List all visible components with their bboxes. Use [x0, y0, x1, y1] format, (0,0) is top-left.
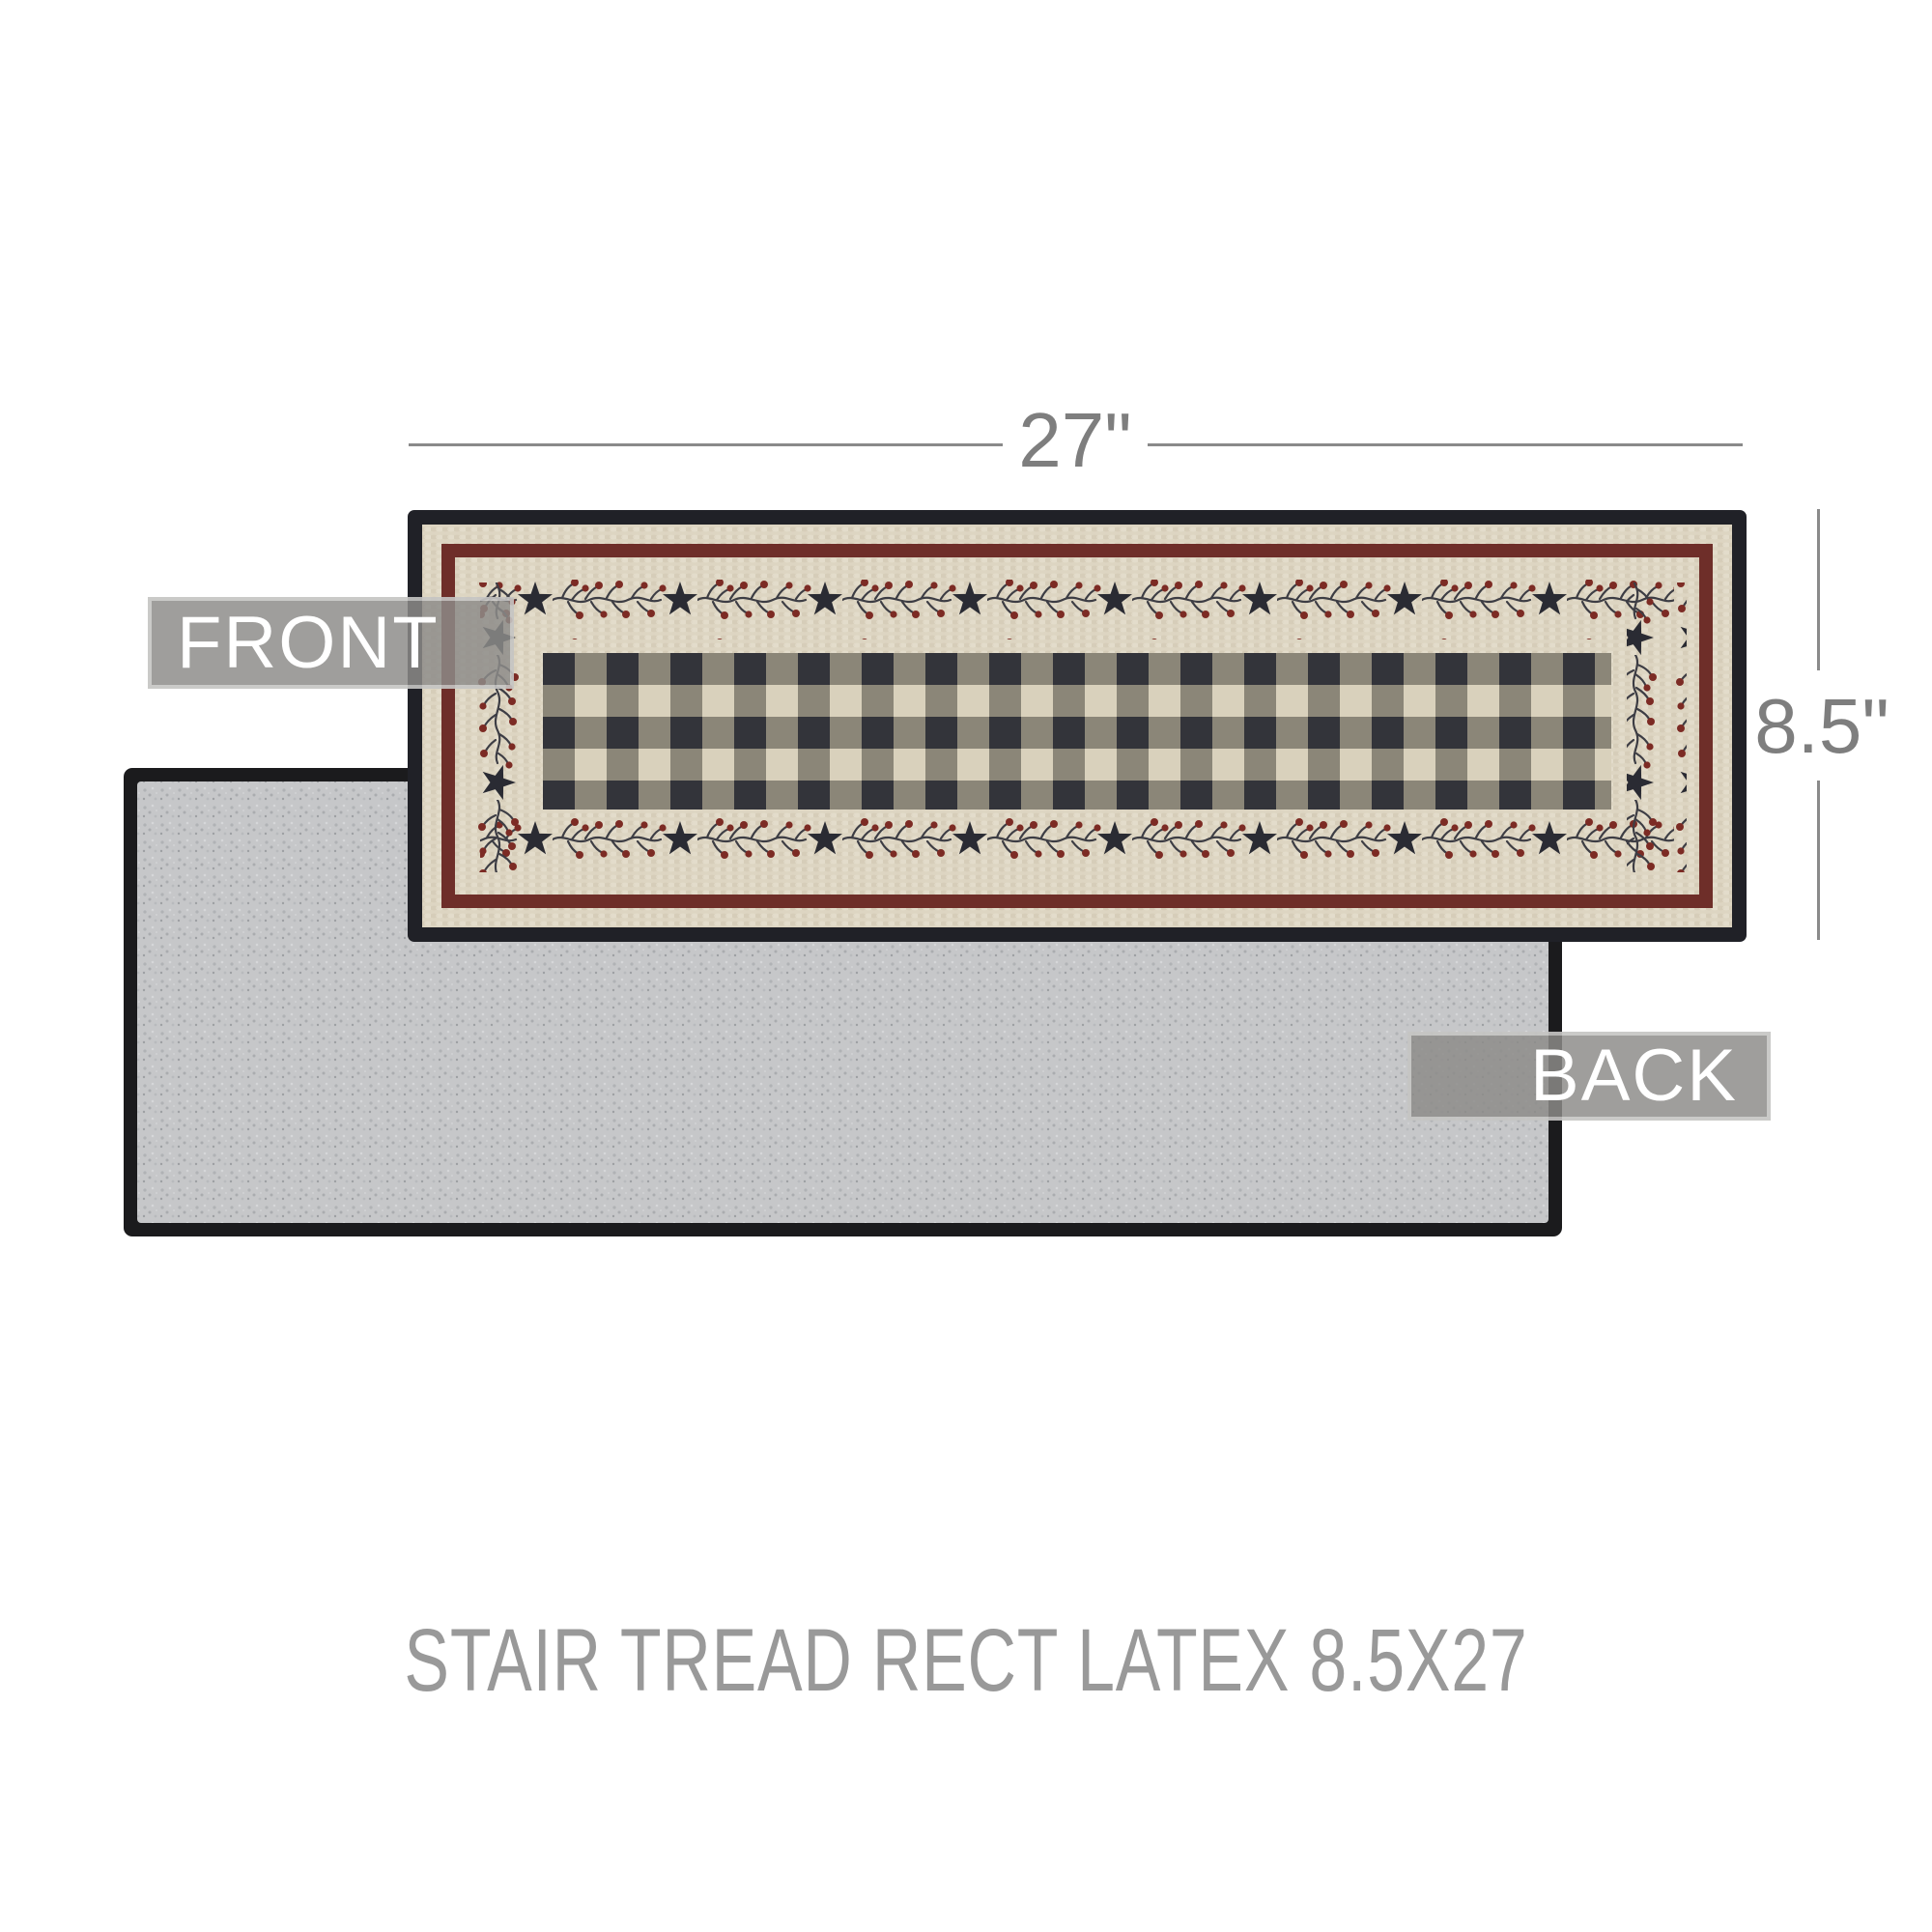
- width-dimension-value: 27": [979, 392, 1172, 489]
- width-dimension-line-right: [1148, 443, 1743, 446]
- front-view-label: FRONT: [148, 597, 514, 689]
- height-dimension-value: 8.5": [1725, 678, 1918, 775]
- back-view-label: BACK: [1407, 1032, 1771, 1121]
- height-dimension-line-top: [1817, 509, 1820, 670]
- vine-border-right: [1627, 582, 1687, 872]
- vine-border-bottom: [480, 815, 1674, 875]
- front-rug-buffalo-check-field: [543, 653, 1611, 810]
- width-dimension-line-left: [409, 443, 1003, 446]
- vine-border-top: [480, 580, 1674, 639]
- product-spec-image: 27" 8.5" FRONT BACK STAIR TREAD RECT LAT…: [0, 0, 1932, 1932]
- product-caption: STAIR TREAD RECT LATEX 8.5X27: [404, 1607, 1527, 1714]
- front-rug-photo: [408, 510, 1747, 942]
- height-dimension-line-bottom: [1817, 781, 1820, 940]
